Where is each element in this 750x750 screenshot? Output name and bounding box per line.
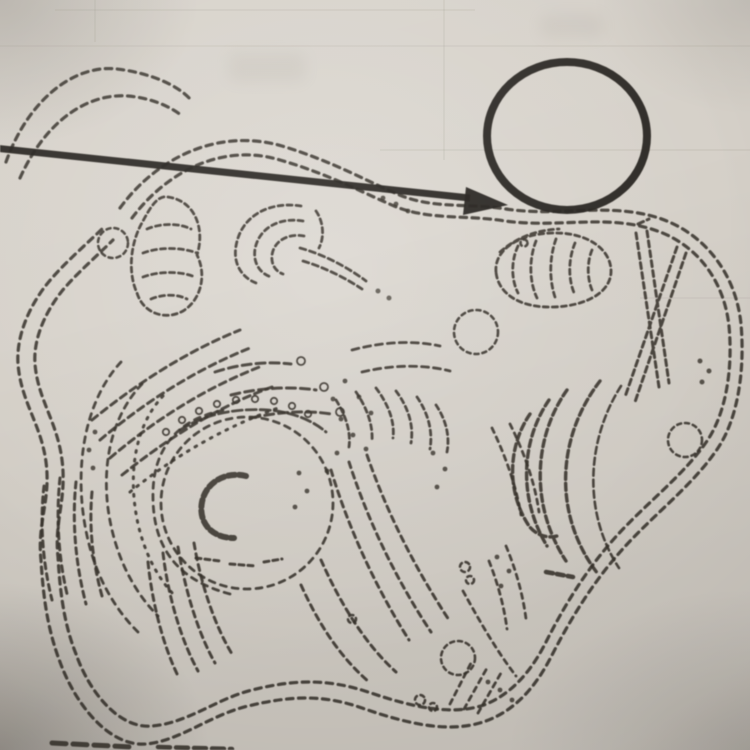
smooth-endoplasmic-reticulum — [215, 343, 539, 713]
chromatin — [196, 558, 282, 566]
arrowhead — [463, 187, 508, 215]
nucleolus — [201, 475, 246, 538]
answer-circle — [487, 62, 647, 210]
golgi-apparatus-upper — [235, 205, 391, 300]
mitochondrion-left — [131, 197, 201, 316]
animal-cell-diagram — [0, 0, 750, 750]
mitochondrion-right — [496, 229, 611, 307]
ribosomes — [87, 196, 515, 703]
pointer-arrow — [0, 148, 508, 215]
nuclear-envelope — [161, 417, 333, 589]
vacuoles-and-vesicles — [98, 228, 702, 711]
centrioles — [625, 219, 712, 402]
